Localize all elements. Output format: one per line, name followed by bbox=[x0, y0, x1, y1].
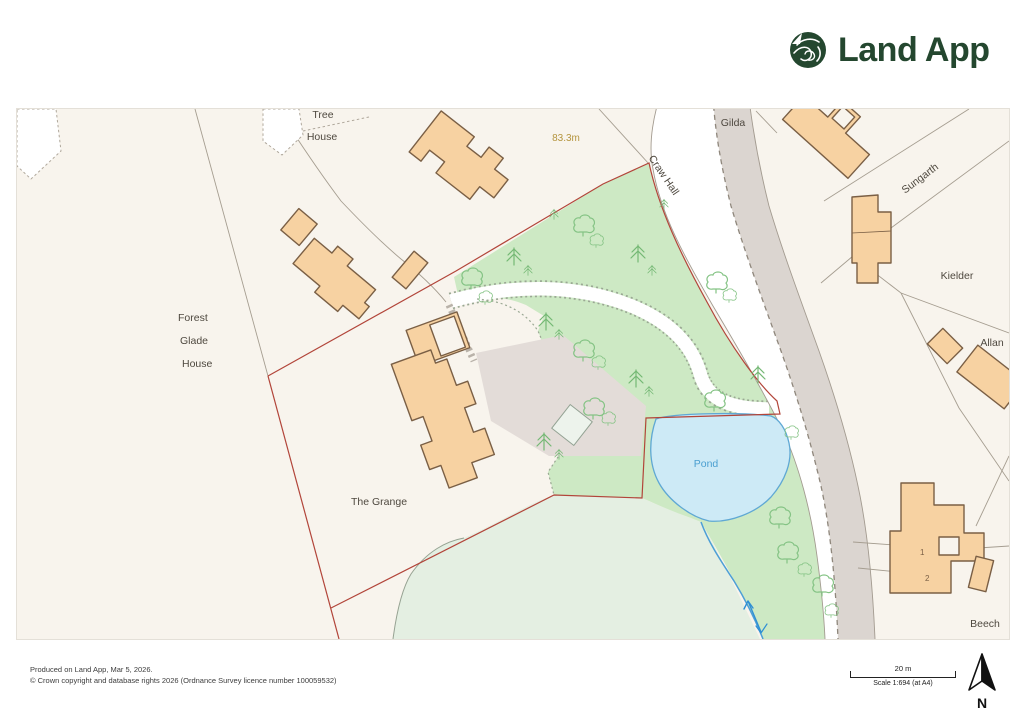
land-app-logo: Land App bbox=[788, 30, 990, 70]
forest-glade-label-1: Forest bbox=[178, 312, 208, 324]
forest-glade-label-2: Glade bbox=[180, 335, 208, 347]
building-2-label: 2 bbox=[925, 574, 930, 583]
spot-height-label: 83.3m bbox=[552, 133, 580, 144]
north-arrow: N bbox=[962, 652, 1002, 711]
land-app-logo-icon bbox=[788, 30, 828, 70]
gilda-label: Gilda bbox=[721, 117, 746, 129]
tree-house-label-2: House bbox=[307, 131, 338, 143]
map-canvas: Tree House 83.3m Craw Hall Gilda Sungart… bbox=[16, 108, 1010, 640]
scale-bar: 20 m Scale 1:694 (at A4) bbox=[850, 664, 956, 687]
beech-label: Beech bbox=[970, 618, 1000, 630]
the-grange-label: The Grange bbox=[351, 496, 407, 508]
forest-glade-label-3: House bbox=[182, 358, 213, 370]
attribution-line-2: © Crown copyright and database rights 20… bbox=[30, 675, 337, 686]
attribution-line-1: Produced on Land App, Mar 5, 2026. bbox=[30, 664, 337, 675]
tree-house-label-1: Tree bbox=[312, 109, 333, 121]
land-app-logo-text: Land App bbox=[838, 31, 990, 70]
pond-label: Pond bbox=[694, 458, 719, 470]
building-1-label: 1 bbox=[920, 548, 925, 557]
north-label: N bbox=[962, 695, 1002, 711]
scale-ratio-label: Scale 1:694 (at A4) bbox=[850, 680, 956, 687]
north-arrow-icon bbox=[962, 652, 1002, 694]
allan-label: Allan bbox=[980, 337, 1004, 349]
kielder-label: Kielder bbox=[941, 270, 974, 282]
attribution: Produced on Land App, Mar 5, 2026. © Cro… bbox=[30, 664, 337, 686]
